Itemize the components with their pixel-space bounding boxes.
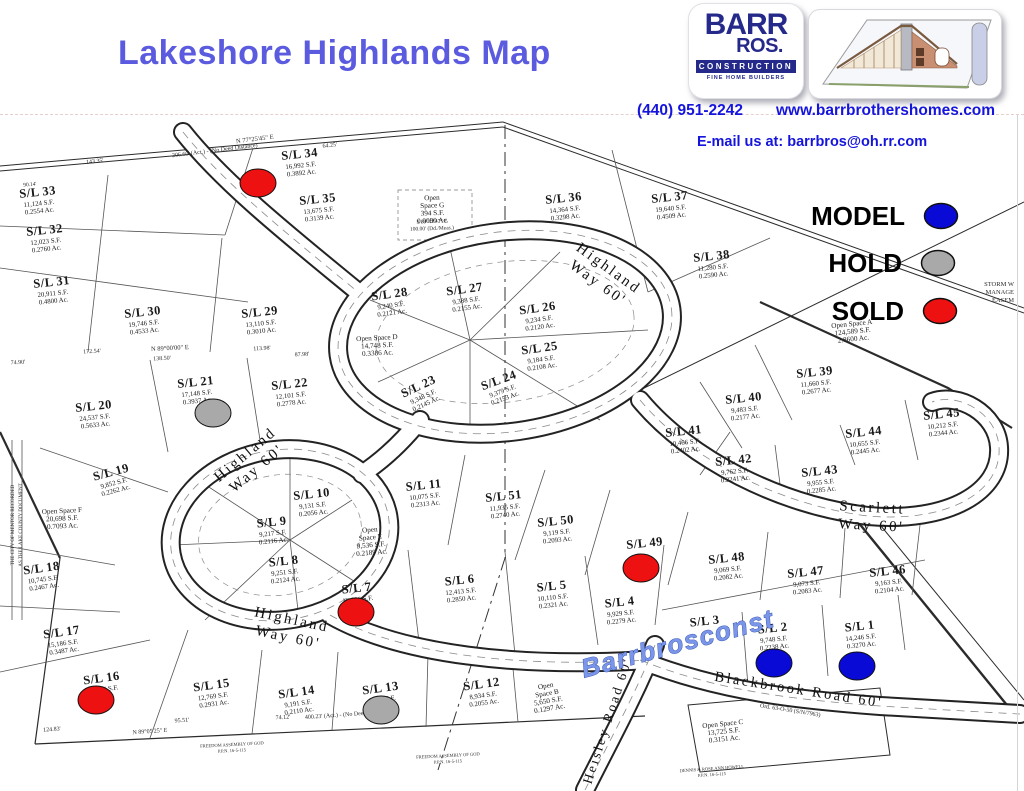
survey-text: 113.98' bbox=[253, 346, 271, 353]
house-blueprint-icon bbox=[809, 10, 1001, 98]
scan-edge-line bbox=[1017, 115, 1018, 791]
marker-model-2 bbox=[756, 649, 792, 677]
legend-item-hold: HOLD bbox=[828, 248, 954, 278]
phone-number: (440) 951-2242 bbox=[637, 102, 743, 120]
lot-label-32: S/L 3212,023 S.F.0.2760 Ac. bbox=[26, 221, 66, 255]
lot-label-46: S/L 469,163 S.F.0.2104 Ac. bbox=[869, 562, 909, 596]
survey-text: N 89°00'00" E bbox=[151, 344, 189, 353]
svg-text:S/L 9: S/L 9 bbox=[256, 513, 287, 530]
lot-label-11: S/L 1110,075 S.F.0.2313 Ac. bbox=[405, 476, 444, 510]
svg-text:S/L 6: S/L 6 bbox=[444, 571, 475, 588]
marker-sold-16 bbox=[78, 686, 114, 714]
lot-label-30: S/L 3019,746 S.F.0.4533 Ac. bbox=[124, 303, 164, 337]
lot-label-51: S/L 5111,935 S.F.0.2740 Ac. bbox=[485, 487, 525, 521]
survey-text: P.P.N. 16-5-115 bbox=[218, 747, 247, 754]
lot-label-4: S/L 49,929 S.F.0.2279 Ac. bbox=[604, 593, 637, 626]
survey-text: AS THE LAKE COUNTY DOCUMENT bbox=[19, 483, 24, 566]
survey-text: MANAGE bbox=[985, 289, 1014, 296]
lot-label-50: S/L 509,119 S.F.0.2093 Ac. bbox=[537, 512, 577, 546]
lot-label-24: S/L 249,379 S.F.0.2153 Ac. bbox=[479, 367, 524, 408]
svg-text:S/L 1: S/L 1 bbox=[844, 617, 875, 634]
lot-label-43: S/L 439,955 S.F.0.2285 Ac. bbox=[801, 462, 841, 496]
survey-text: S 89°42'47" E bbox=[416, 217, 448, 225]
lot-label-14: S/L 149,191 S.F.0.2110 Ac. bbox=[277, 683, 318, 718]
survey-text: STORM W bbox=[984, 281, 1015, 288]
survey-text: 64.25' bbox=[322, 142, 337, 150]
lot-label-5: S/L 510,110 S.F.0.2321 Ac. bbox=[536, 577, 570, 610]
lot-label-10: S/L 109,131 S.F.0.2056 Ac. bbox=[293, 485, 333, 519]
lot-label-1: S/L 114,246 S.F.0.3270 Ac. bbox=[844, 617, 878, 650]
lot-label-8: S/L 89,251 S.F.0.2124 Ac. bbox=[268, 552, 301, 585]
marker-model-1 bbox=[839, 652, 875, 680]
marker-hold-21 bbox=[195, 399, 231, 427]
lot-label-25: S/L 259,184 S.F.0.2108 Ac. bbox=[520, 339, 561, 374]
survey-text: P.P.N. 16-5-115 bbox=[698, 771, 727, 778]
lot-label-22: S/L 2212,101 S.F.0.2778 Ac. bbox=[271, 375, 311, 409]
survey-text: 124.83' bbox=[43, 726, 61, 733]
lot-label-9: S/L 99,217 S.F.0.2116 Ac. bbox=[256, 513, 289, 546]
svg-text:Way 60': Way 60' bbox=[838, 516, 905, 535]
lot-label-48: S/L 489,069 S.F.0.2082 Ac. bbox=[708, 549, 748, 583]
plat-map: S/L 114,246 S.F.0.3270 Ac.S/L 29,748 S.F… bbox=[0, 115, 1024, 791]
logo-construction-bar: CONSTRUCTION bbox=[696, 60, 796, 73]
legend-swatch-hold bbox=[922, 251, 955, 276]
lot-label-39: S/L 3911,660 S.F.0.2677 Ac. bbox=[796, 363, 836, 397]
lot-label-28: S/L 289,240 S.F.0.2121 Ac. bbox=[370, 285, 411, 320]
lot-label-19: S/L 199,852 S.F.0.2262 Ac. bbox=[91, 461, 134, 499]
lot-label-42: S/L 429,762 S.F.0.2241 Ac. bbox=[715, 451, 755, 485]
lot-label-45: S/L 4510,212 S.F.0.2344 Ac. bbox=[923, 405, 963, 439]
barr-bros-construction-logo: BARR ROS. CONSTRUCTION FINE HOME BUILDER… bbox=[688, 3, 804, 99]
lot-label-34: S/L 3416,992 S.F.0.3892 Ac. bbox=[281, 145, 321, 179]
lot-label-26: S/L 269,234 S.F.0.2120 Ac. bbox=[518, 299, 559, 334]
svg-text:S/L 49: S/L 49 bbox=[626, 534, 664, 552]
open-space-label: Open Space F20,698 S.F.0.7093 Ac. bbox=[42, 506, 83, 531]
svg-text:0.7093 Ac.: 0.7093 Ac. bbox=[47, 521, 79, 531]
lot-label-40: S/L 409,483 S.F.0.2177 Ac. bbox=[725, 389, 765, 423]
legend-item-sold: SOLD bbox=[832, 296, 957, 326]
svg-text:0.3386 Ac.: 0.3386 Ac. bbox=[362, 348, 394, 358]
lot-label-23: S/L 239,348 S.F.0.2145 Ac. bbox=[399, 372, 445, 415]
legend-item-model: MODEL bbox=[811, 201, 957, 231]
survey-text: 138.50' bbox=[153, 356, 171, 363]
lot-label-49: S/L 49 bbox=[626, 534, 664, 552]
legend-label-hold: HOLD bbox=[828, 248, 902, 278]
lot-label-12: S/L 128,934 S.F.0.2055 Ac. bbox=[462, 675, 503, 710]
logo-tagline: FINE HOME BUILDERS bbox=[689, 75, 803, 81]
lot-label-31: S/L 3120,911 S.F.0.4800 Ac. bbox=[33, 273, 73, 307]
lot-label-35: S/L 3513,675 S.F.0.3139 Ac. bbox=[299, 190, 339, 224]
marker-sold-49 bbox=[623, 554, 659, 582]
survey-text: 143.35' bbox=[86, 158, 104, 166]
lot-label-38: S/L 3811,280 S.F.0.2590 Ac. bbox=[693, 247, 733, 281]
legend-swatch-sold bbox=[924, 299, 957, 324]
lot-label-18: S/L 1810,745 S.F.0.2467 Ac. bbox=[22, 559, 63, 594]
svg-text:S/L 4: S/L 4 bbox=[604, 593, 635, 610]
lot-label-29: S/L 2913,110 S.F.0.3010 Ac. bbox=[241, 303, 281, 337]
open-space-label: OpenSpace B5,650 S.F.0.1297 Ac. bbox=[530, 679, 566, 715]
logo-line1: BARR bbox=[689, 11, 803, 38]
lot-label-41: S/L 4110,466 S.F.0.2402 Ac. bbox=[665, 422, 705, 456]
page-title: Lakeshore Highlands Map bbox=[118, 34, 551, 73]
survey-text: 74.90' bbox=[11, 360, 26, 367]
survey-text: 95.51' bbox=[174, 718, 189, 725]
open-space-label: Open Space C13,725 S.F.0.3151 Ac. bbox=[702, 718, 746, 745]
survey-text: 87.98' bbox=[295, 352, 310, 359]
open-space-label: Open Space D14,748 S.F.0.3386 Ac. bbox=[356, 333, 399, 358]
marker-sold-7 bbox=[338, 598, 374, 626]
lot-label-44: S/L 4410,655 S.F.0.2445 Ac. bbox=[845, 423, 885, 457]
house-blueprint-logo bbox=[808, 9, 1002, 99]
lot-label-6: S/L 612,413 S.F.0.2850 Ac. bbox=[444, 571, 478, 604]
survey-text: P.P.N. 16-5-115 bbox=[434, 758, 463, 765]
email-line: E-mail us at: barrbros@oh.rr.com bbox=[697, 134, 927, 150]
lot-label-15: S/L 1512,769 S.F.0.2931 Ac. bbox=[192, 676, 233, 711]
survey-text: 74.12' bbox=[275, 715, 290, 722]
survey-text: THE CITY OF MENTOR RECORDED bbox=[11, 484, 16, 565]
legend-label-sold: SOLD bbox=[832, 296, 904, 326]
survey-text: 90.14' bbox=[23, 181, 37, 188]
legend-label-model: MODEL bbox=[811, 201, 905, 231]
marker-hold-13 bbox=[363, 696, 399, 724]
survey-text: EASEM bbox=[992, 297, 1014, 304]
lot-label-20: S/L 2024,537 S.F.0.5633 Ac. bbox=[75, 397, 115, 431]
website-url: www.barrbrothershomes.com bbox=[776, 102, 995, 120]
marker-sold-34 bbox=[240, 169, 276, 197]
svg-text:S/L 8: S/L 8 bbox=[268, 552, 299, 569]
svg-text:S/L 5: S/L 5 bbox=[536, 577, 567, 594]
legend-swatch-model bbox=[925, 204, 958, 229]
survey-text: N 89°05'25" E bbox=[132, 727, 168, 736]
lot-label-37: S/L 3719,640 S.F.0.4509 Ac. bbox=[651, 188, 691, 222]
lot-label-27: S/L 279,388 S.F.0.2155 Ac. bbox=[445, 280, 486, 315]
lot-label-36: S/L 3614,364 S.F.0.3298 Ac. bbox=[545, 189, 585, 223]
survey-text: 172.54' bbox=[83, 349, 101, 356]
lot-label-17: S/L 1715,186 S.F.0.3487 Ac. bbox=[42, 623, 83, 658]
